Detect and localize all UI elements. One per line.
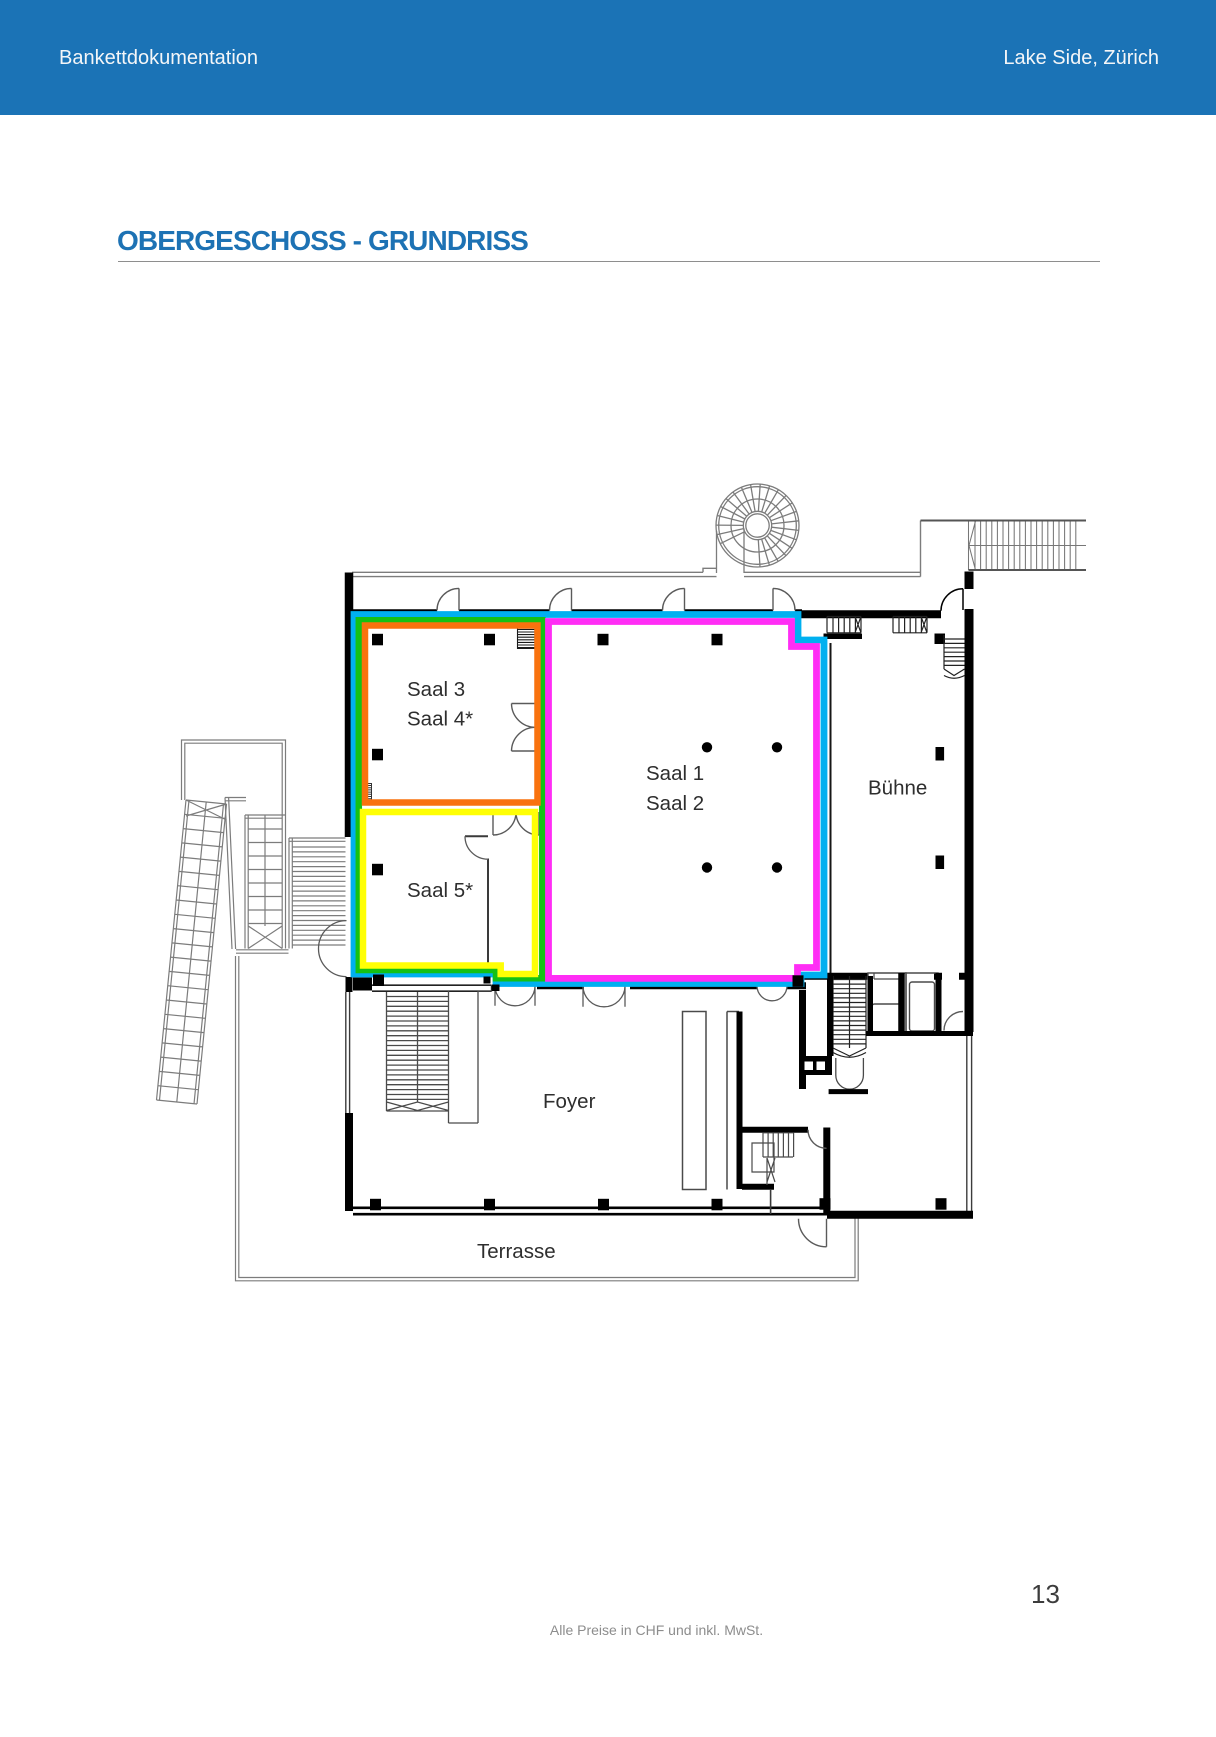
svg-text:Saal 2: Saal 2 (646, 792, 704, 815)
svg-text:Foyer: Foyer (543, 1090, 596, 1113)
svg-text:Saal 1: Saal 1 (646, 762, 704, 785)
svg-text:Terrasse: Terrasse (477, 1240, 556, 1263)
svg-text:Saal 4*: Saal 4* (407, 708, 473, 731)
svg-text:Bühne: Bühne (868, 777, 927, 800)
svg-text:Saal 3: Saal 3 (407, 678, 465, 701)
svg-text:Saal 5*: Saal 5* (407, 879, 473, 902)
